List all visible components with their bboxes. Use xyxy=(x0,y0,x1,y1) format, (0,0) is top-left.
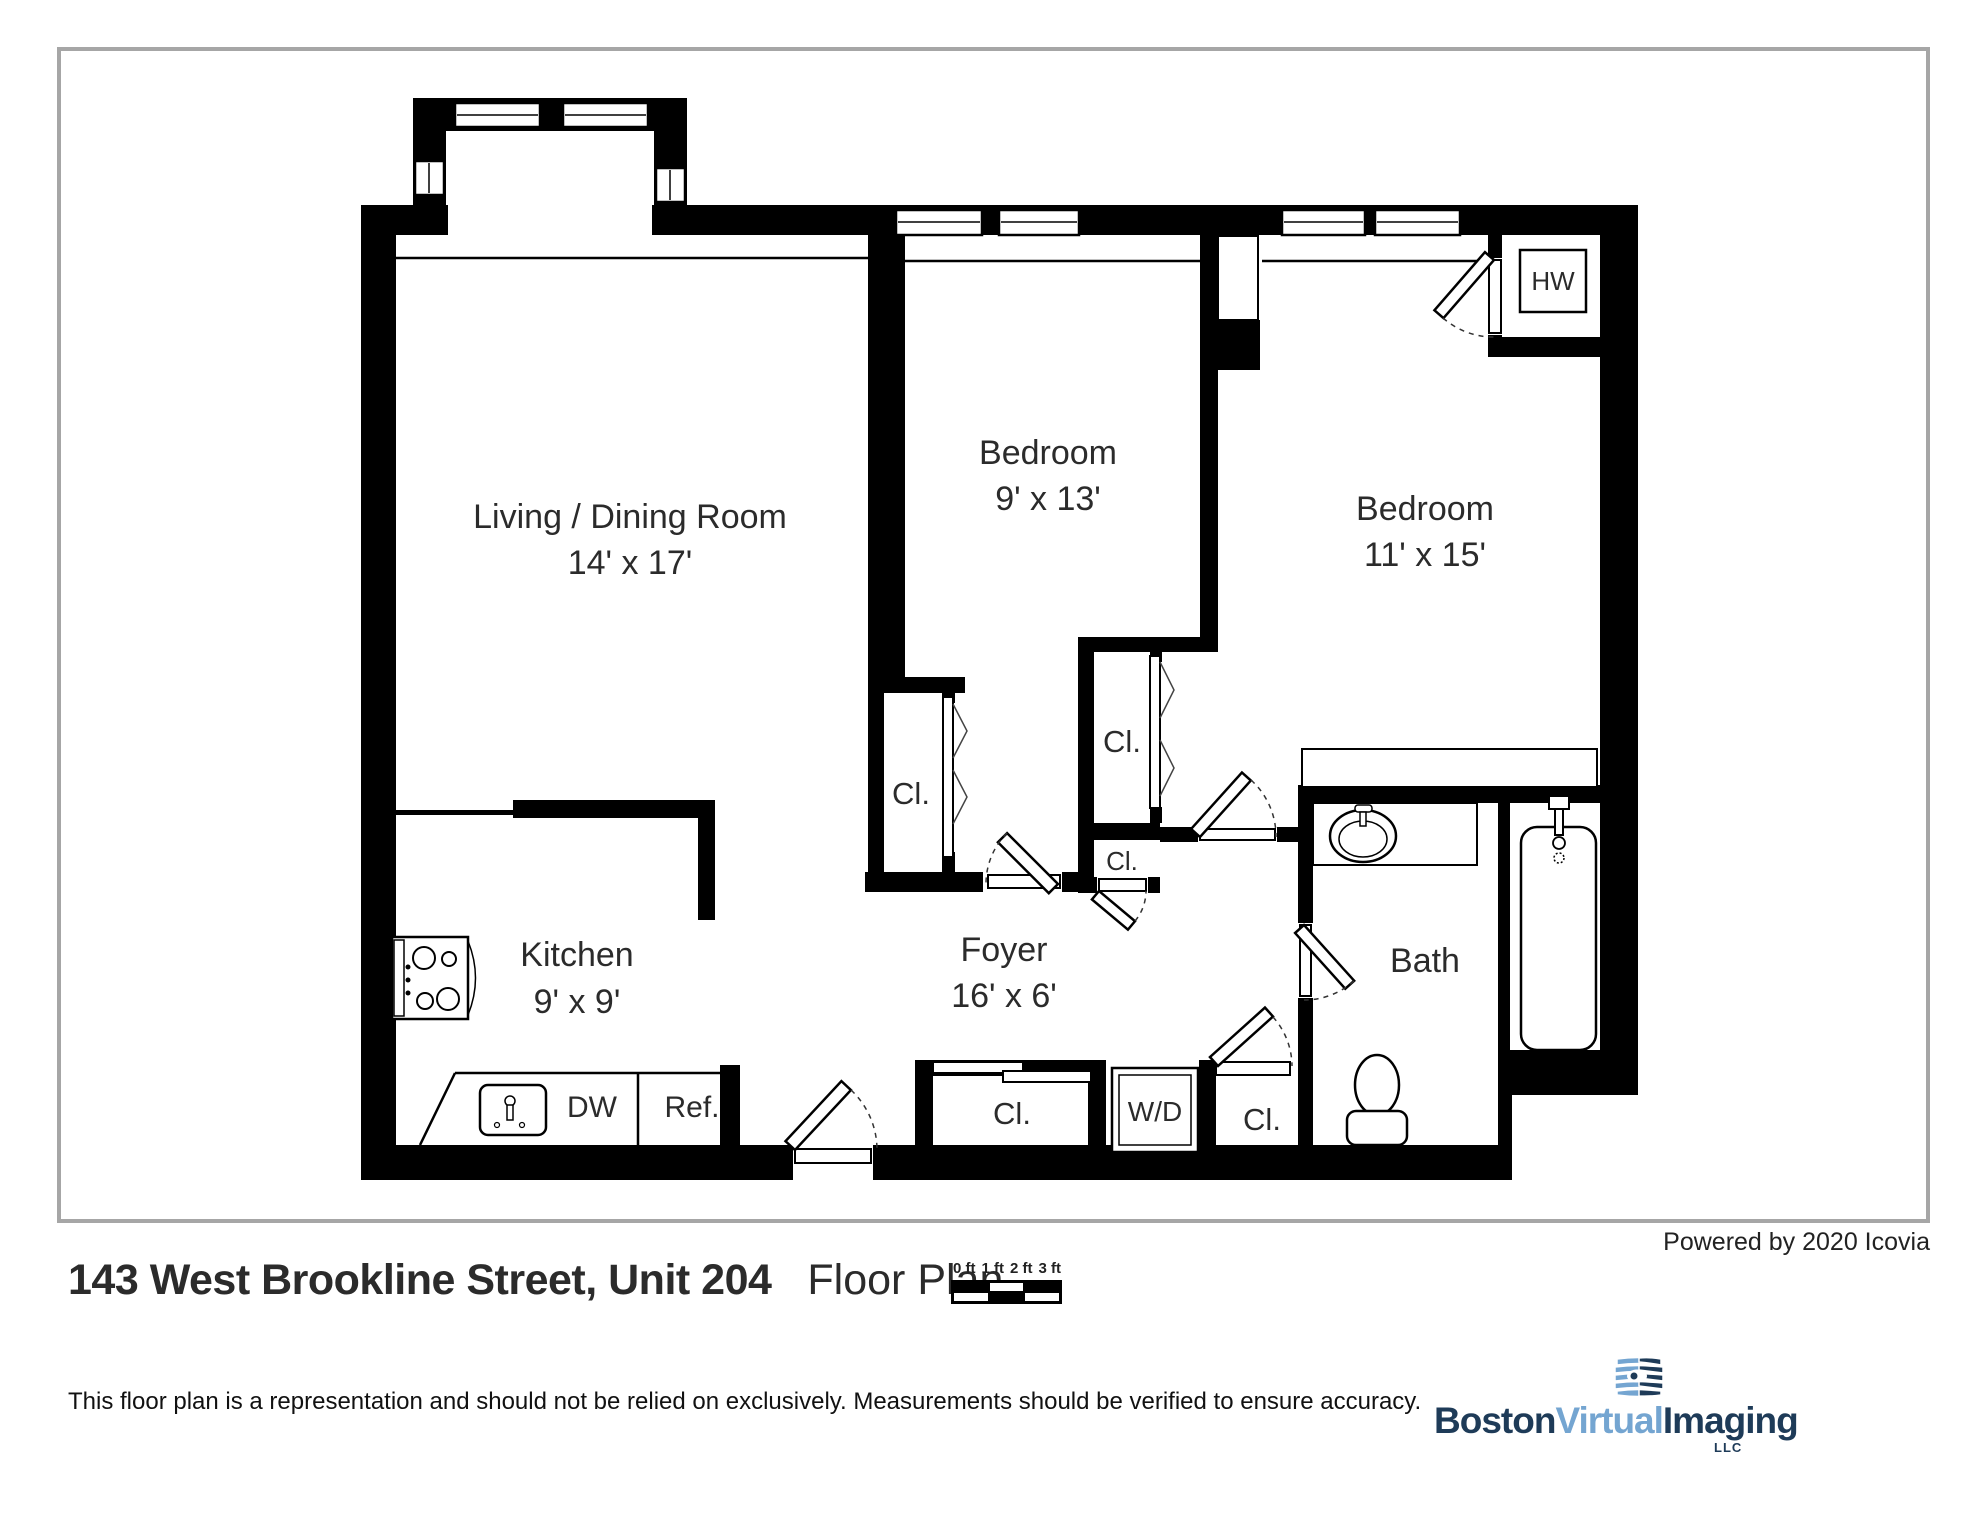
wall-niche xyxy=(1218,236,1258,320)
floor-plan: Living / Dining Room 14' x 17' Bedroom 9… xyxy=(0,0,1988,1536)
scale-label-1: 1 ft xyxy=(982,1260,1005,1277)
wall-left-exterior xyxy=(361,205,396,1180)
bedroom2-dims: 11' x 15' xyxy=(1364,536,1486,574)
logo-word-virtual: Virtual xyxy=(1555,1400,1662,1441)
wall-small-closet-stub-left xyxy=(1078,877,1097,893)
scale-bar: 0 ft 1 ft 2 ft 3 ft xyxy=(951,1260,1063,1304)
wall-living-bedroom1-divider xyxy=(868,235,905,677)
wall-closet-column-mid xyxy=(1078,823,1160,840)
wall-chase-block xyxy=(1218,320,1260,370)
wall-bath-west-lower xyxy=(1298,998,1313,1145)
wall-bedroom1-door-stub xyxy=(1060,872,1078,892)
wall-tub-alcove xyxy=(1498,803,1510,1060)
bedroom2-door-sill xyxy=(1200,829,1275,840)
logo-word-imaging: Imaging xyxy=(1663,1400,1798,1441)
wall-wd-right xyxy=(1199,1060,1216,1145)
bathtub-icon xyxy=(1521,796,1596,1050)
disclaimer-text: This floor plan is a representation and … xyxy=(68,1388,1421,1416)
kitchen-dims: 9' x 9' xyxy=(534,983,621,1021)
closet1-bifold-track xyxy=(943,697,953,857)
wall-closet1-west xyxy=(868,693,884,892)
scale-label-3: 3 ft xyxy=(1039,1260,1062,1277)
living-room-label: Living / Dining Room xyxy=(473,498,787,536)
entry-door-sill xyxy=(795,1149,871,1163)
wall-closet-column-west xyxy=(1078,652,1094,893)
logo-llc: LLC xyxy=(1714,1440,1742,1455)
logo-word-boston: Boston xyxy=(1434,1400,1555,1441)
wall-small-closet-stub-right xyxy=(1148,877,1160,893)
wall-kitchen-east xyxy=(698,800,715,920)
small-closet-door-sill xyxy=(1099,879,1146,891)
kitchen-sink-icon xyxy=(480,1085,546,1135)
foyer-closet-slider-2 xyxy=(1003,1071,1091,1082)
bath-label: Bath xyxy=(1390,942,1460,980)
wall-hw-closet-bottom xyxy=(1488,337,1600,357)
kitchen-pass-through-line xyxy=(396,810,513,815)
wall-closet2-bifold-stub-bottom xyxy=(1150,807,1162,823)
plan-title: 143 West Brookline Street, Unit 204 xyxy=(68,1256,771,1305)
living-room-dims: 14' x 17' xyxy=(568,544,693,582)
wall-bottom-right-connector xyxy=(1498,1095,1512,1150)
wall-bath-west-upper xyxy=(1298,788,1313,923)
small-closet-label: Cl. xyxy=(1106,846,1138,876)
scale-bar-checker xyxy=(951,1280,1062,1304)
foyer-closet-label: Cl. xyxy=(993,1096,1031,1131)
wall-bottom-right-step xyxy=(1498,1050,1638,1095)
boston-virtual-imaging-logo-icon xyxy=(1613,1356,1665,1398)
wall-right-exterior xyxy=(1600,205,1638,1095)
wall-bottom-exterior xyxy=(361,1145,1512,1180)
bathroom-vanity xyxy=(1313,803,1477,865)
hot-water-label: HW xyxy=(1531,266,1575,296)
wall-bedroom1-bedroom2-divider xyxy=(1200,235,1218,637)
dishwasher-label: DW xyxy=(567,1091,618,1124)
scale-label-0: 0 ft xyxy=(953,1260,976,1277)
closet2-label: Cl. xyxy=(1103,724,1141,759)
bedroom1-dims: 9' x 13' xyxy=(995,480,1101,518)
washer-dryer-label: W/D xyxy=(1128,1096,1182,1127)
wall-foyer-north-west xyxy=(865,872,983,892)
powered-by-credit: Powered by 2020 Icovia xyxy=(1663,1228,1930,1257)
foyer-dims: 16' x 6' xyxy=(951,977,1057,1015)
wall-closet1-top xyxy=(868,677,965,693)
hw-door-sill xyxy=(1489,260,1501,333)
plan-title-row: 143 West Brookline Street, Unit 204 Floo… xyxy=(68,1256,1003,1305)
bedroom2-ledge xyxy=(1302,749,1597,787)
wall-top-exterior xyxy=(652,205,1638,235)
closet1-label: Cl. xyxy=(892,776,930,811)
bedroom2-label: Bedroom xyxy=(1356,490,1494,528)
boston-virtual-imaging-logo: BostonVirtualImaging xyxy=(1434,1400,1798,1442)
kitchen-label: Kitchen xyxy=(520,936,633,974)
scale-bar-labels: 0 ft 1 ft 2 ft 3 ft xyxy=(951,1260,1063,1277)
wall-foyer-north-stub-right xyxy=(1277,827,1298,842)
stove-icon xyxy=(392,937,476,1019)
foyer-label: Foyer xyxy=(961,931,1048,969)
scale-label-2: 2 ft xyxy=(1010,1260,1033,1277)
bedroom1-label: Bedroom xyxy=(979,434,1117,472)
wall-entry-side xyxy=(720,1065,740,1145)
wall-kitchen-north xyxy=(513,800,698,818)
wall-closet-column-top xyxy=(1078,637,1218,652)
closet2-bifold-track xyxy=(1150,656,1160,808)
entry-closet-door-sill xyxy=(1216,1062,1290,1075)
refrigerator-label: Ref. xyxy=(664,1091,719,1124)
entry-closet-label: Cl. xyxy=(1243,1102,1281,1137)
